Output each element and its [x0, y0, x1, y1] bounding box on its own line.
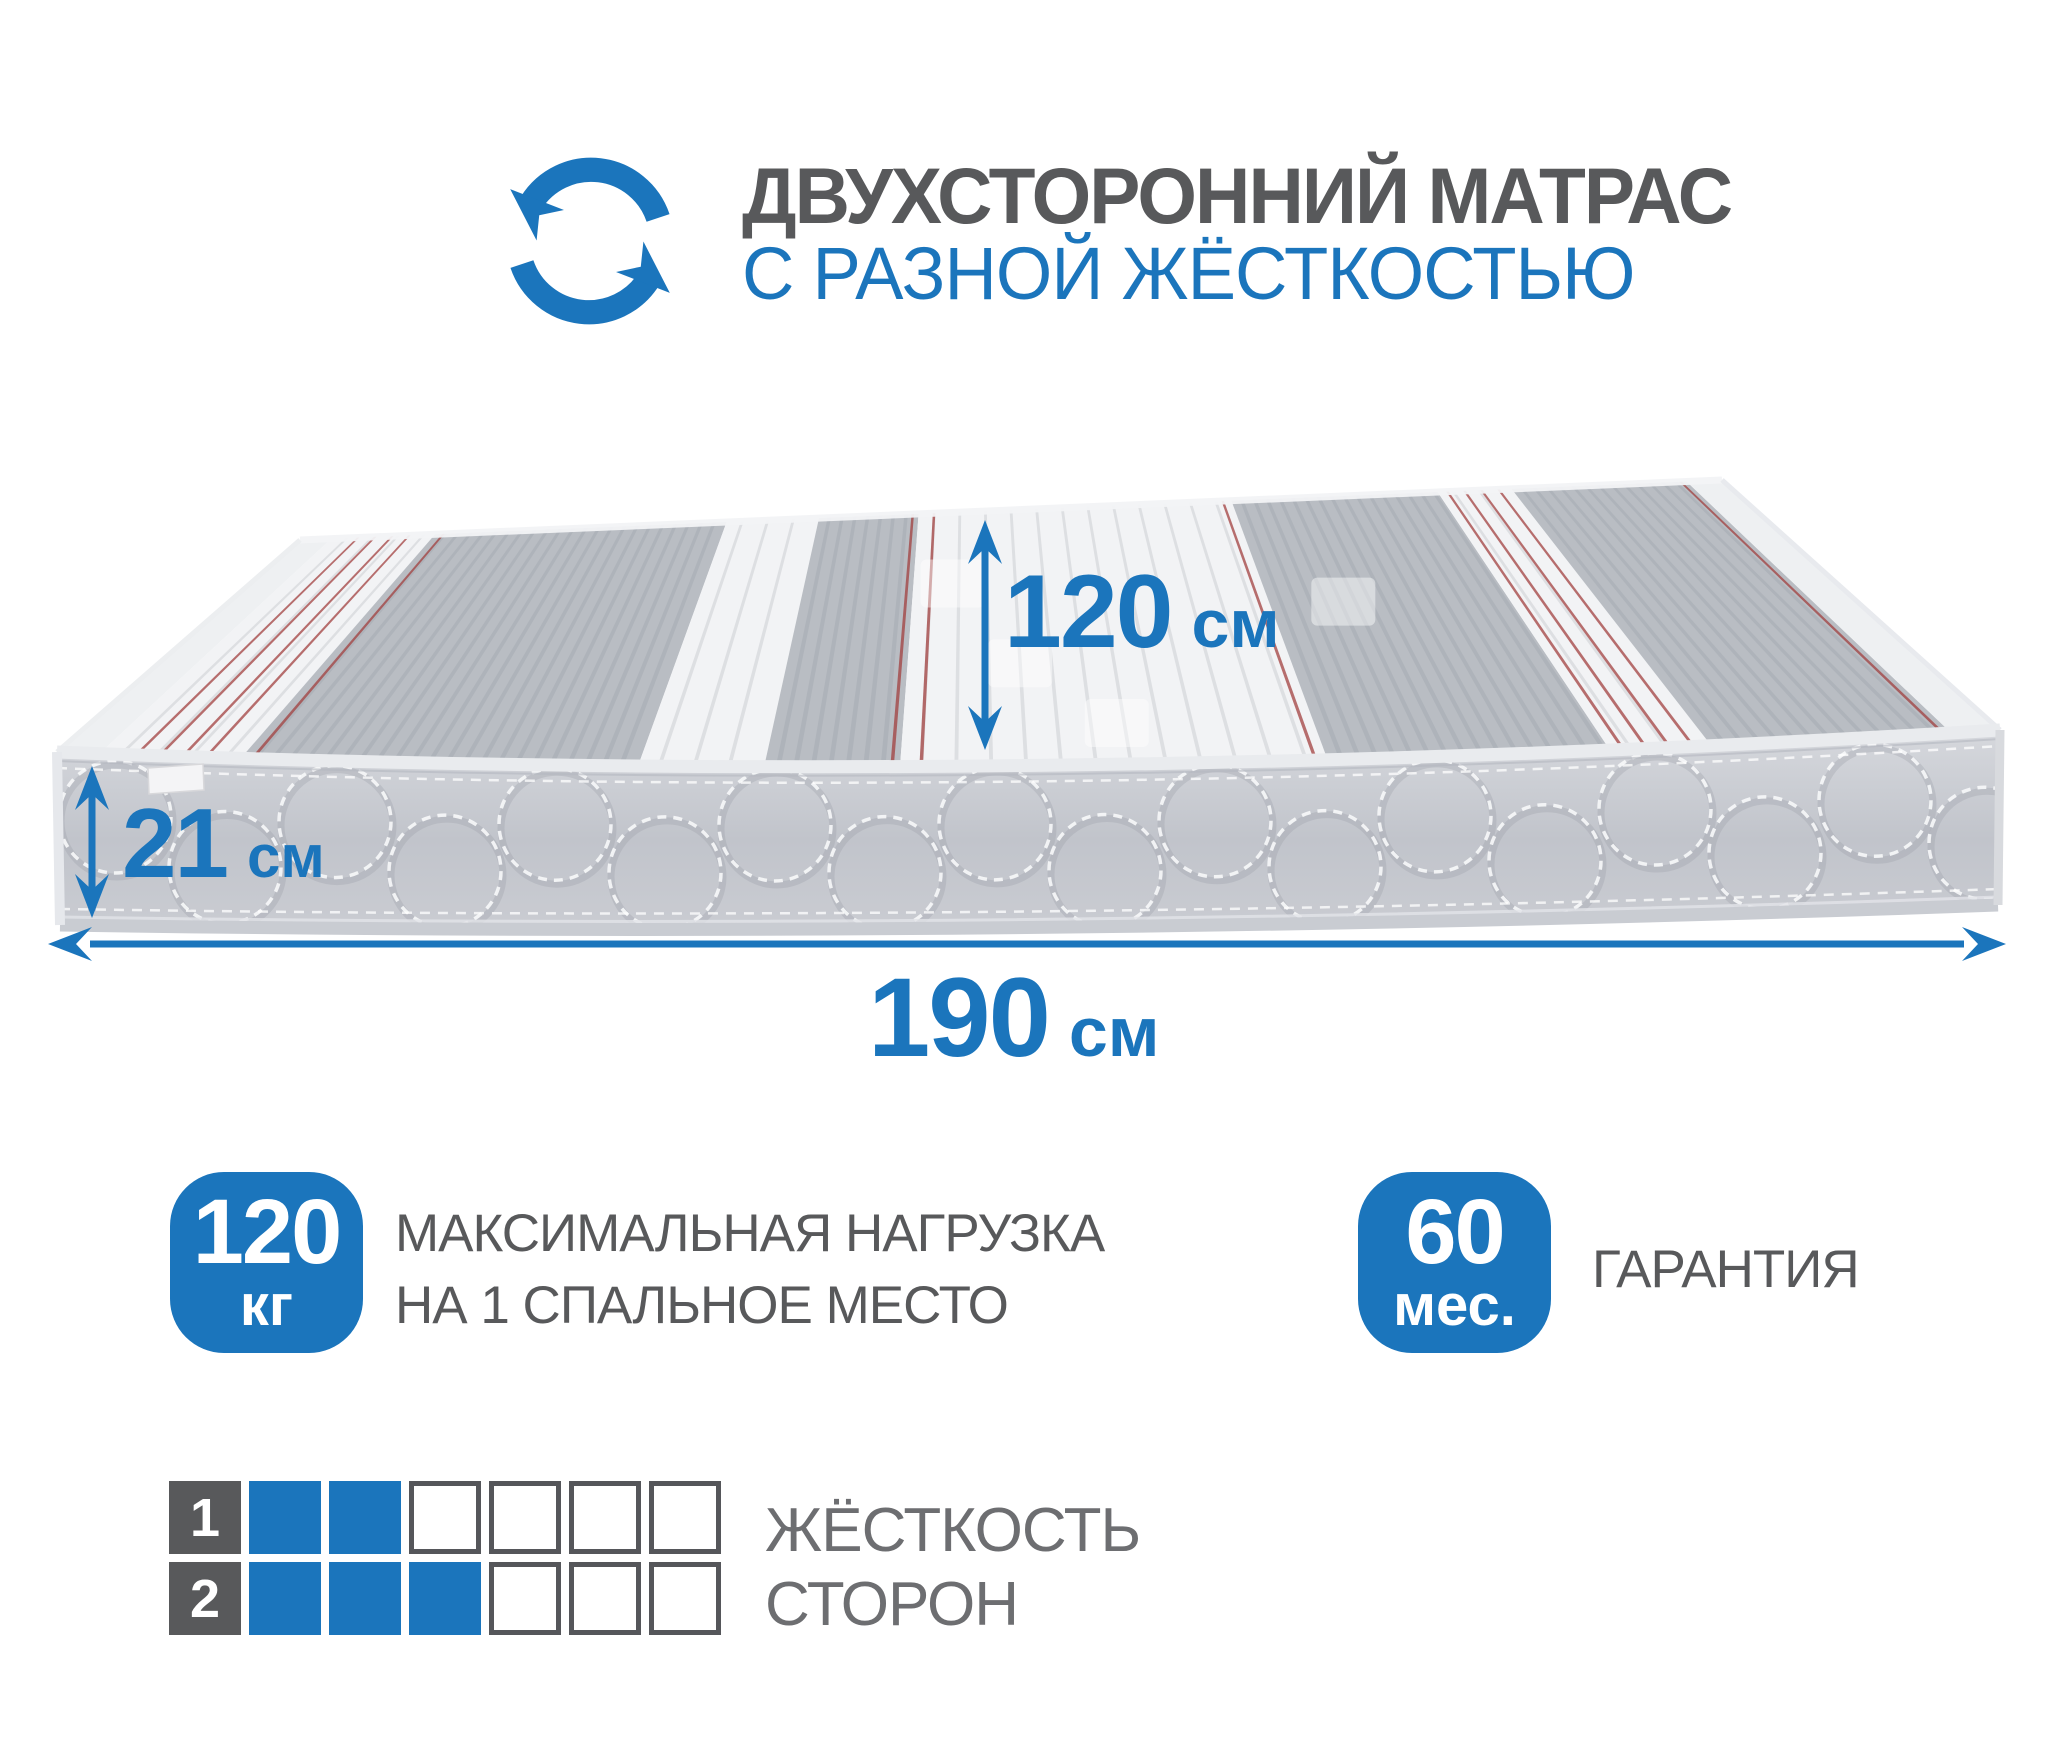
firmness-cell-filled	[329, 1562, 401, 1635]
dimension-length-label: 190 см	[868, 962, 1160, 1074]
firmness-caption-line2: СТОРОН	[765, 1568, 1140, 1642]
firmness-cell-empty	[569, 1562, 641, 1635]
firmness-scale: 12	[169, 1481, 721, 1635]
firmness-cell-empty	[489, 1481, 561, 1554]
page-subtitle: С РАЗНОЙ ЖЁСТКОСТЬЮ	[742, 231, 1634, 316]
warranty-value: 60	[1405, 1190, 1503, 1275]
firmness-row-label: 1	[169, 1481, 241, 1554]
firmness-caption-line1: ЖЁСТКОСТЬ	[765, 1494, 1140, 1568]
max-load-caption-line2: НА 1 СПАЛЬНОЕ МЕСТО	[395, 1270, 1104, 1342]
firmness-row-label: 2	[169, 1562, 241, 1635]
firmness-cell-filled	[329, 1481, 401, 1554]
dimension-thickness-value: 21	[122, 794, 227, 892]
warranty-caption: ГАРАНТИЯ	[1592, 1234, 1859, 1306]
max-load-unit: кг	[240, 1277, 293, 1335]
firmness-row-2: 2	[169, 1562, 721, 1635]
firmness-cell-filled	[409, 1562, 481, 1635]
rotate-arrows-icon	[497, 148, 683, 334]
firmness-cell-filled	[249, 1562, 321, 1635]
firmness-cell-empty	[649, 1481, 721, 1554]
dimension-width-unit: см	[1192, 590, 1280, 658]
firmness-row-1: 1	[169, 1481, 721, 1554]
dimension-thickness-label: 21 см	[122, 794, 325, 892]
max-load-value: 120	[193, 1190, 341, 1275]
warranty-caption-line1: ГАРАНТИЯ	[1592, 1234, 1859, 1306]
firmness-cell-empty	[569, 1481, 641, 1554]
dimension-thickness-unit: см	[247, 827, 325, 887]
firmness-cell-empty	[649, 1562, 721, 1635]
dimension-width-label: 120 см	[1004, 560, 1280, 664]
warranty-badge: 60 мес.	[1358, 1172, 1551, 1353]
max-load-caption-line1: МАКСИМАЛЬНАЯ НАГРУЗКА	[395, 1198, 1104, 1270]
warranty-unit: мес.	[1393, 1277, 1516, 1335]
dimension-length-value: 190	[868, 962, 1049, 1074]
max-load-caption: МАКСИМАЛЬНАЯ НАГРУЗКА НА 1 СПАЛЬНОЕ МЕСТ…	[395, 1198, 1104, 1342]
max-load-badge: 120 кг	[170, 1172, 363, 1353]
firmness-cell-empty	[489, 1562, 561, 1635]
firmness-cell-filled	[249, 1481, 321, 1554]
firmness-cell-empty	[409, 1481, 481, 1554]
firmness-caption: ЖЁСТКОСТЬ СТОРОН	[765, 1494, 1140, 1642]
dimension-width-value: 120	[1004, 560, 1172, 664]
dimension-length-unit: см	[1069, 997, 1160, 1067]
page-title: ДВУХСТОРОННИЙ МАТРАС	[742, 150, 1731, 242]
